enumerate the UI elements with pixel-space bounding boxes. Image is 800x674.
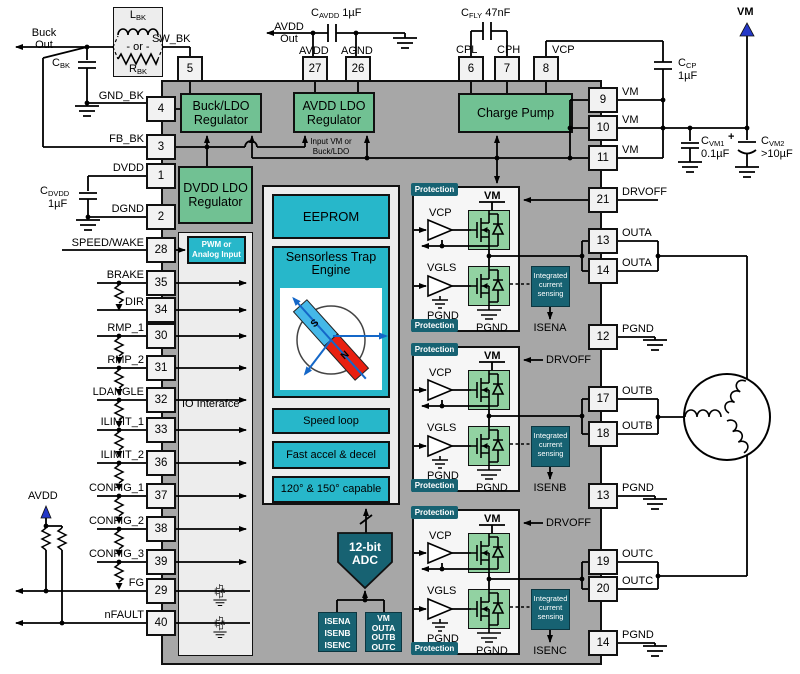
vm-rail-label-a: VM xyxy=(484,190,501,202)
buck-out-label: Buck Out xyxy=(24,27,64,51)
eeprom-label: EEPROM xyxy=(303,210,359,223)
ilimit2-label: ILIMIT_2 xyxy=(101,449,144,461)
pwm-analog-label: PWM or Analog Input xyxy=(189,240,244,260)
pin-33: 33 xyxy=(146,417,176,443)
fg-label: FG xyxy=(129,577,144,589)
pin-31: 31 xyxy=(146,355,176,381)
current-sense-c-label: Integrated current sensing xyxy=(534,594,568,621)
io-interface-label: IO Interafce xyxy=(182,398,239,410)
dir-label: DIR xyxy=(125,296,144,308)
outb17-label: OUTB xyxy=(622,385,653,397)
pgnd-bottom-label-b: PGND xyxy=(476,482,508,494)
config3-label: CONFIG_3 xyxy=(89,548,144,560)
motor-icon xyxy=(684,374,770,460)
r-bk-label: RBK xyxy=(113,63,163,78)
fb-bk-label: FB_BK xyxy=(109,133,144,145)
eeprom-block: EEPROM xyxy=(272,194,390,239)
avdd-out-label: AVDD Out xyxy=(268,21,310,45)
pin-29: 29 xyxy=(146,578,176,604)
pin-26: 26 xyxy=(345,56,371,82)
pin-4: 4 xyxy=(146,96,176,122)
charge-pump-label: Charge Pump xyxy=(477,106,554,120)
adc-label: 12-bit ADC xyxy=(338,541,392,567)
c-fly-label: CFLY 47nF xyxy=(461,7,510,22)
protection-tab-a-top: Protection xyxy=(411,183,458,196)
l-bk-label: LBK xyxy=(113,9,163,24)
trap-engine-label: Sensorless Trap Engine xyxy=(281,251,381,277)
vm10-label: VM xyxy=(622,114,639,126)
pin-20: 20 xyxy=(588,576,618,602)
pin-28: 28 xyxy=(146,237,176,263)
pin-19: 19 xyxy=(588,549,618,575)
vgls-label-a: VGLS xyxy=(427,262,456,274)
pin-5: 5 xyxy=(177,56,203,82)
vm-supply-arrow-icon xyxy=(740,23,754,36)
vcp-label-b: VCP xyxy=(429,367,452,379)
dvdd-pin-label: DVDD xyxy=(113,162,144,174)
vm11-label: VM xyxy=(622,144,639,156)
input-note: Input VM or Buck/LDO xyxy=(299,137,363,156)
rmp2-label: RMP_2 xyxy=(107,354,144,366)
pin-18: 18 xyxy=(588,421,618,447)
drvoff-label-c: DRVOFF xyxy=(546,517,591,529)
avdd-ldo-regulator-block: AVDD LDO Regulator xyxy=(293,92,375,133)
vm9-label: VM xyxy=(622,86,639,98)
vcp-pin-label: VCP xyxy=(552,44,575,56)
protection-tab-b-top: Protection xyxy=(411,343,458,356)
outa14-label: OUTA xyxy=(622,257,652,269)
drvoff-pin-label: DRVOFF xyxy=(622,186,667,198)
speed-loop-block: Speed loop xyxy=(272,408,390,434)
brake-label: BRAKE xyxy=(107,269,144,281)
pin-7: 7 xyxy=(494,56,520,82)
pin-11: 11 xyxy=(588,145,618,171)
pin-1: 1 xyxy=(146,163,176,189)
high-fet-b xyxy=(468,370,510,410)
pin-14-outa: 14 xyxy=(588,258,618,284)
pgnd-left-label-b: PGND xyxy=(427,470,459,482)
pin-10: 10 xyxy=(588,115,618,141)
charge-pump-block: Charge Pump xyxy=(458,93,573,133)
current-sense-b: Integrated current sensing xyxy=(531,426,570,467)
c-vm1-value: 0.1µF xyxy=(701,148,729,160)
c-bk-label: CBK xyxy=(52,57,70,72)
outc20-label: OUTC xyxy=(622,575,653,587)
pin-27: 27 xyxy=(302,56,328,82)
sw-bk-label: SW_BK xyxy=(152,33,191,45)
pin-6: 6 xyxy=(458,56,484,82)
pgnd12-label: PGND xyxy=(622,323,654,335)
vcp-label-c: VCP xyxy=(429,530,452,542)
pin-8: 8 xyxy=(533,56,559,82)
low-fet-b xyxy=(468,426,510,466)
vgls-label-b: VGLS xyxy=(427,422,456,434)
high-fet-a xyxy=(468,210,510,250)
current-sense-b-label: Integrated current sensing xyxy=(534,431,568,458)
block-diagram: Buck/LDO Regulator AVDD LDO Regulator Ch… xyxy=(0,0,800,674)
pin-13-pgnd: 13 xyxy=(588,483,618,509)
outc19-label: OUTC xyxy=(622,548,653,560)
pin-32: 32 xyxy=(146,387,176,413)
pin-13-outa: 13 xyxy=(588,228,618,254)
capable-label: 120° & 150° capable xyxy=(281,483,382,496)
c-vm2-value: >10µF xyxy=(761,148,793,160)
vm-rail-label-c: VM xyxy=(484,513,501,525)
low-fet-a xyxy=(468,266,510,306)
adc-isen-inputs: ISENA ISENB ISENC xyxy=(318,612,357,652)
pgnd-bottom-label-a: PGND xyxy=(476,322,508,334)
capable-block: 120° & 150° capable xyxy=(272,476,390,503)
pwm-analog-input-block: PWM or Analog Input xyxy=(187,236,246,264)
avdd-ldo-label: AVDD LDO Regulator xyxy=(295,99,373,127)
adc-vm-inputs-label: VM OUTA OUTB OUTC xyxy=(371,613,395,652)
pgnd14-label: PGND xyxy=(622,629,654,641)
pgnd-left-label-c: PGND xyxy=(427,633,459,645)
nfault-label: nFAULT xyxy=(104,609,144,621)
pin-30: 30 xyxy=(146,323,176,349)
outb18-label: OUTB xyxy=(622,420,653,432)
pin-39: 39 xyxy=(146,549,176,575)
avdd-pin-label: AVDD xyxy=(299,45,329,57)
drvoff-label-b: DRVOFF xyxy=(546,354,591,366)
config2-label: CONFIG_2 xyxy=(89,515,144,527)
c-cp-value: 1µF xyxy=(678,70,697,82)
speed-loop-label: Speed loop xyxy=(303,415,359,428)
pin-21: 21 xyxy=(588,187,618,213)
pin-3: 3 xyxy=(146,134,176,160)
c-vm2-plus: + xyxy=(728,131,734,143)
vcp-label-a: VCP xyxy=(429,207,452,219)
avdd-pullup-label: AVDD xyxy=(28,490,58,502)
isenc-label: ISENC xyxy=(531,645,569,657)
pin-12: 12 xyxy=(588,324,618,350)
vm-rail-label-b: VM xyxy=(484,350,501,362)
pin-40: 40 xyxy=(146,610,176,636)
pin-34: 34 xyxy=(146,297,176,323)
pin-36: 36 xyxy=(146,450,176,476)
pin-14-pgnd: 14 xyxy=(588,630,618,656)
isenb-label: ISENB xyxy=(531,482,569,494)
pgnd-bottom-label-c: PGND xyxy=(476,645,508,657)
cph-pin-label: CPH xyxy=(497,44,520,56)
isena-label: ISENA xyxy=(531,322,569,334)
c-dvdd-value: 1µF xyxy=(48,198,67,210)
current-sense-c: Integrated current sensing xyxy=(531,589,570,630)
cpl-pin-label: CPL xyxy=(456,44,477,56)
pin-9: 9 xyxy=(588,87,618,113)
c-avdd-label: CAVDD 1µF xyxy=(311,7,361,22)
pin-38: 38 xyxy=(146,516,176,542)
vm-top-label: VM xyxy=(737,6,754,18)
dvdd-ldo-label: DVDD LDO Regulator xyxy=(180,181,251,209)
gnd-bk-label: GND_BK xyxy=(99,90,144,102)
dgnd-pin-label: DGND xyxy=(112,203,144,215)
agnd-pin-label: AGND xyxy=(341,45,373,57)
io-interface-box xyxy=(178,232,253,656)
ldangle-label: LDANGLE xyxy=(93,386,144,398)
ilimit1-label: ILIMIT_1 xyxy=(101,416,144,428)
pin-2: 2 xyxy=(146,204,176,230)
pgnd13-label: PGND xyxy=(622,482,654,494)
rmp1-label: RMP_1 xyxy=(107,322,144,334)
pin-37: 37 xyxy=(146,483,176,509)
speed-wake-label: SPEED/WAKE xyxy=(72,237,144,249)
config1-label: CONFIG_1 xyxy=(89,482,144,494)
current-sense-a-label: Integrated current sensing xyxy=(534,271,568,298)
vgls-label-c: VGLS xyxy=(427,585,456,597)
high-fet-c xyxy=(468,533,510,573)
protection-tab-c-top: Protection xyxy=(411,506,458,519)
avdd-supply-arrow-icon xyxy=(41,506,51,518)
fast-accel-block: Fast accel & decel xyxy=(272,441,390,469)
fast-accel-label: Fast accel & decel xyxy=(286,449,376,462)
buck-ldo-label: Buck/LDO Regulator xyxy=(182,99,260,127)
pin-35: 35 xyxy=(146,270,176,296)
pgnd-left-label-a: PGND xyxy=(427,310,459,322)
low-fet-c xyxy=(468,589,510,629)
rotor-image xyxy=(280,288,382,390)
adc-vm-inputs: VM OUTA OUTB OUTC xyxy=(365,612,402,652)
buck-ldo-regulator-block: Buck/LDO Regulator xyxy=(180,93,262,133)
adc-isen-inputs-label: ISENA ISENB ISENC xyxy=(325,616,351,650)
pin-17: 17 xyxy=(588,386,618,412)
current-sense-a: Integrated current sensing xyxy=(531,266,570,307)
dvdd-ldo-regulator-block: DVDD LDO Regulator xyxy=(178,166,253,224)
outa13-label: OUTA xyxy=(622,227,652,239)
